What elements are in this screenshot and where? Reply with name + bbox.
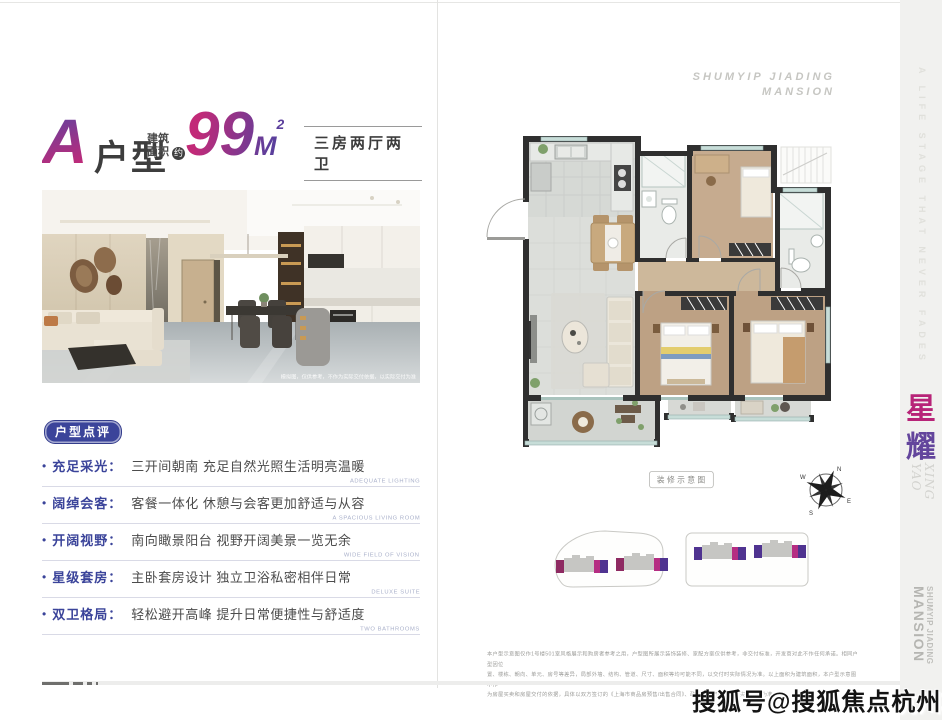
compass-icon: N E S W: [797, 461, 855, 519]
sidebar-tagline: A LIFE STAGE THAT NEVER FADES: [915, 67, 927, 297]
brand-wordmark: SHUMYIP JIADING MANSION: [693, 70, 835, 100]
review-row: •双卫格局：轻松避开高峰 提升日常便捷性与舒适度 TWO BATHROOMS: [42, 598, 420, 635]
svg-text:S: S: [809, 511, 813, 517]
plan-label: 装修示意图: [649, 471, 714, 488]
stairs-symbol: [781, 147, 831, 183]
area-value: 99M2: [185, 104, 284, 166]
floor-plan: [483, 131, 843, 453]
review-row: •充足采光：三开间朝南 充足自然光照生活明亮温暖 ADEQUATE LIGHTI…: [42, 450, 420, 487]
site-diagrams: [538, 520, 818, 604]
photo-caption: 模拟图，仅供参考，不作为实际交付依据，以实际交付为准: [281, 372, 416, 380]
review-row: •开阔视野：南向瞰景阳台 视野开阔美景一览无余 WIDE FIELD OF VI…: [42, 524, 420, 561]
approx-badge: 约: [172, 147, 185, 160]
brochure-page: A 户型 建筑 面积 约 99M2 三房两厅两卫: [0, 0, 942, 720]
unit-photo: 模拟图，仅供参考，不作为实际交付依据，以实际交付为准: [42, 190, 420, 383]
dining-set: [591, 215, 635, 271]
svg-text:E: E: [847, 499, 851, 505]
master-furniture: [743, 321, 814, 383]
svg-text:N: N: [837, 467, 841, 473]
photo-island: [296, 308, 330, 366]
bullet-icon: •: [42, 533, 46, 547]
top-hairline: [0, 2, 942, 3]
bullet-icon: •: [42, 607, 46, 621]
review-badge: 户型点评: [45, 421, 121, 443]
layout-summary: 三房两厅两卫: [304, 126, 422, 181]
unit-photo-art: [42, 190, 420, 383]
watermark: 搜狐号@搜狐焦点杭州站: [692, 682, 942, 717]
project-logo: 星 耀: [903, 391, 939, 467]
unit-letter: A: [42, 112, 88, 172]
page-divider: [437, 0, 438, 688]
bullet-icon: •: [42, 496, 46, 510]
svg-text:W: W: [800, 475, 806, 481]
bedroom2-furniture: [653, 323, 719, 385]
unit-header: A 户型 建筑 面积 约 99M2 三房两厅两卫: [42, 110, 422, 180]
bullet-icon: •: [42, 459, 46, 473]
bullet-icon: •: [42, 570, 46, 584]
area-label: 建筑 面积: [147, 133, 169, 159]
review-row: •星级套房：主卧套房设计 独立卫浴私密相伴日常 DELUXE SUITE: [42, 561, 420, 598]
review-row: •阔绰会客：客餐一体化 休憩与会客更加舒适与从容 A SPACIOUS LIVI…: [42, 487, 420, 524]
review-list: •充足采光：三开间朝南 充足自然光照生活明亮温暖 ADEQUATE LIGHTI…: [42, 450, 420, 635]
site-boundary-right: [686, 533, 808, 586]
project-logo-en: XING YAO: [907, 463, 935, 527]
